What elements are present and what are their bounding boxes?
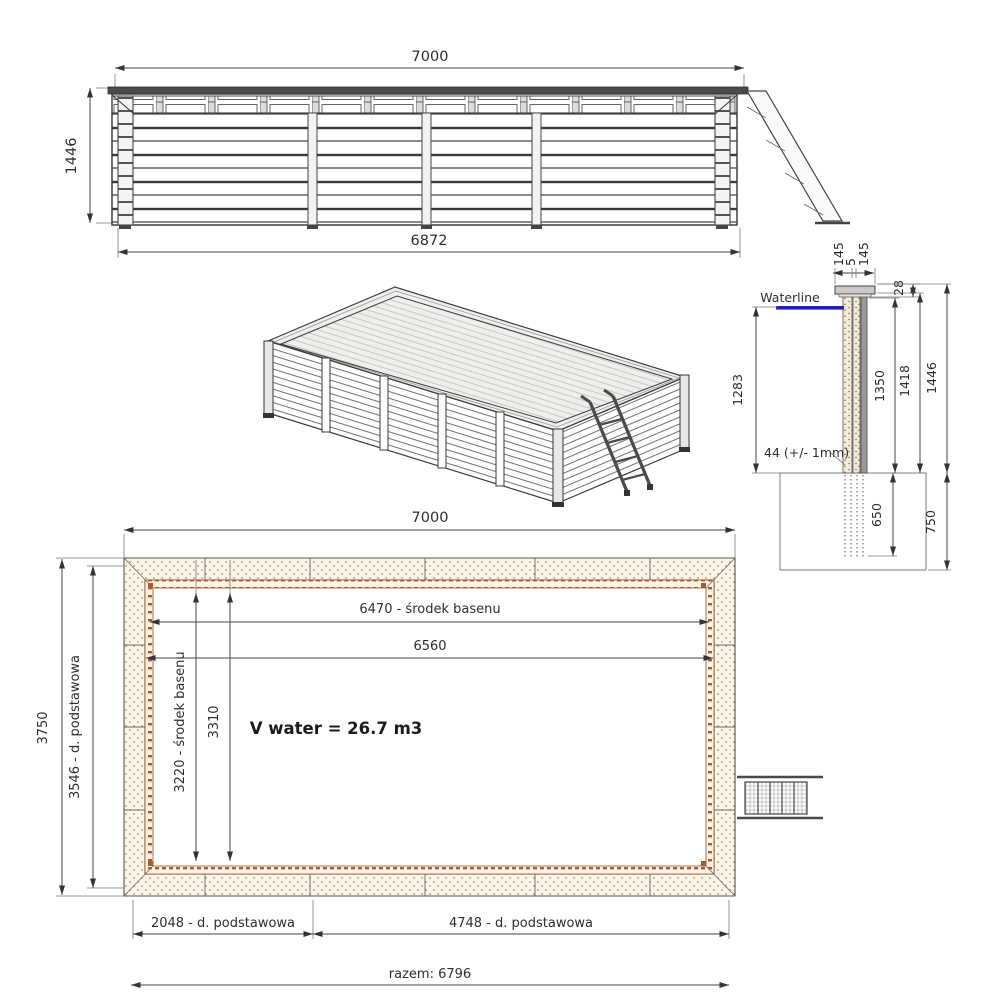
section-foundation-box xyxy=(780,473,926,570)
plan-view: 7000 6470 - środek basenu xyxy=(36,510,823,985)
section-wall-plank-inner xyxy=(853,296,860,473)
plan-outer-height-dim: 3750 xyxy=(36,711,51,744)
section-cap-dim-right: 145 xyxy=(856,242,871,266)
elevation-post-2 xyxy=(422,113,431,225)
plan-base-height-dim: 3546 - d. podstawowa xyxy=(68,655,83,799)
iso-corner-post-front xyxy=(553,429,563,506)
plan-base-total-dim: razem: 6796 xyxy=(389,967,471,982)
wall-section-detail: Waterline 145 5 145 28 1283 1350 1418 14… xyxy=(730,242,951,570)
section-water-depth-dim: 1283 xyxy=(730,374,745,406)
elevation-bottom-dimension: 6872 xyxy=(411,233,448,249)
plan-ladder xyxy=(737,777,823,818)
plan-inner-center-height-dim: 3220 - środek basenu xyxy=(173,651,188,792)
iso-post-4 xyxy=(496,412,504,486)
section-cap-thickness-dim: 28 xyxy=(891,280,906,296)
elevation-post-3 xyxy=(532,113,541,225)
elevation-left-dimension: 1446 xyxy=(64,138,80,175)
section-wall-height-dim: 1418 xyxy=(897,365,912,397)
iso-corner-post-left xyxy=(264,341,273,417)
plan-base-left-dim: 2048 - d. podstawowa xyxy=(151,916,295,931)
waterline-line xyxy=(776,306,844,310)
pool-technical-drawing: 7000 1446 6872 xyxy=(0,0,1000,1000)
elevation-view: 7000 1446 6872 xyxy=(64,49,850,258)
iso-post-2 xyxy=(380,376,388,450)
elevation-top-cap xyxy=(108,87,748,94)
plan-inner-center-width-dim: 6470 - środek basenu xyxy=(359,602,500,617)
elevation-ladder xyxy=(747,91,850,223)
elevation-top-rail-band xyxy=(112,96,737,113)
elevation-left-corner-post xyxy=(118,96,133,225)
elevation-right-corner-post xyxy=(715,96,730,225)
iso-post-3 xyxy=(438,394,446,468)
section-wall-liner xyxy=(861,296,867,473)
elevation-top-dimension: 7000 xyxy=(412,49,449,65)
waterline-label: Waterline xyxy=(760,290,820,305)
section-top-cap xyxy=(835,286,875,294)
plan-inner-width-dim: 6560 xyxy=(413,639,446,654)
water-volume-label: V water = 26.7 m3 xyxy=(250,719,423,738)
isometric-view xyxy=(263,287,690,507)
section-inner-height-dim: 1350 xyxy=(872,370,887,402)
drawing-svg: 7000 1446 6872 xyxy=(0,0,1000,1000)
plan-corner-fixings xyxy=(148,583,706,866)
iso-post-1 xyxy=(322,358,330,432)
plan-base-right-dim: 4748 - d. podstawowa xyxy=(449,916,593,931)
plan-inner-height-dim: 3310 xyxy=(207,705,222,738)
plan-top-dimension: 7000 xyxy=(412,510,449,526)
iso-corner-post-right xyxy=(680,375,689,451)
elevation-post-1 xyxy=(308,113,317,225)
section-embed-depth-dim: 650 xyxy=(869,503,884,527)
section-total-height-dim: 1446 xyxy=(924,362,939,394)
section-foundation-depth-dim: 750 xyxy=(923,510,938,534)
